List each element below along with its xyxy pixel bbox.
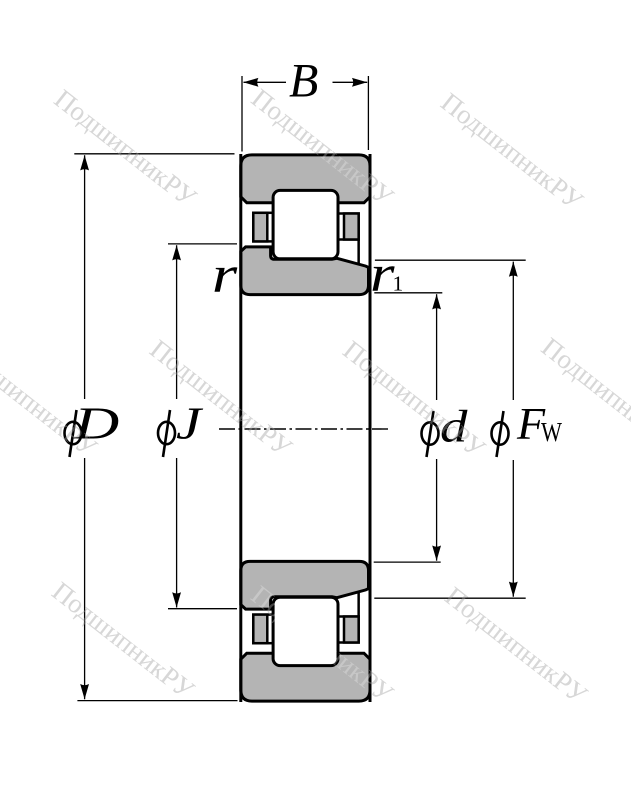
svg-text:1: 1 [393,271,404,295]
svg-text:ПодшипникРУ: ПодшипникРУ [435,87,589,217]
svg-text:W: W [541,416,562,447]
svg-text:ПодшипникРУ: ПодшипникРУ [338,335,492,465]
svg-text:B: B [289,55,318,108]
svg-text:ПодшипникРУ: ПодшипникРУ [440,581,594,711]
svg-text:J: J [176,398,204,449]
svg-text:r: r [212,247,238,304]
svg-text:ПодшипникРУ: ПодшипникРУ [49,83,203,213]
